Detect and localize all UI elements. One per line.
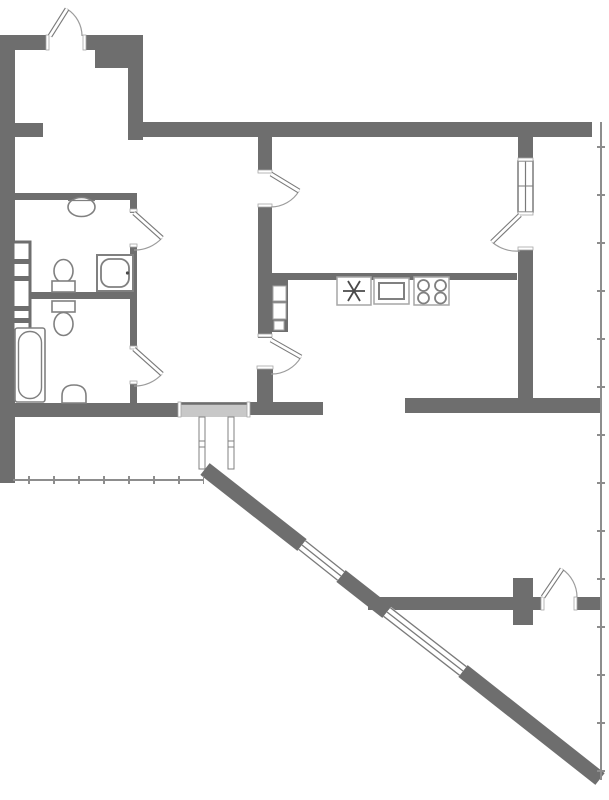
jamb-cap — [541, 597, 544, 610]
toilet-bathroom-bowl — [54, 313, 73, 336]
bath-shaft-rung — [13, 306, 30, 311]
wall-notch-top — [95, 50, 130, 68]
door-leaf-core — [492, 215, 520, 242]
diagonal-wall-seg1 — [205, 469, 302, 545]
top-left-entrance-door-arc — [67, 9, 82, 36]
wall-loggia-b — [577, 597, 601, 610]
vestibule-line-left — [199, 417, 205, 469]
door-leaf-core — [134, 349, 162, 374]
kitchen-door-arc — [271, 357, 301, 374]
kitchen-shaft-box — [274, 321, 284, 330]
jamb-cap — [574, 597, 577, 610]
door-leaf-core — [50, 9, 67, 36]
kitchen-shaft-box — [273, 286, 286, 301]
wall-center-top — [258, 137, 272, 173]
wc-door-arc — [134, 238, 162, 250]
diagonal-window-2-edge — [384, 616, 460, 675]
shower-cabin-handle — [126, 271, 129, 274]
wall-bath-right-seg3 — [130, 384, 137, 404]
wall-right-top — [518, 137, 533, 161]
bath-shaft-rung — [13, 318, 30, 323]
entry-vestibule-lines — [199, 417, 234, 469]
pedestal-sink-bathroom — [62, 385, 86, 403]
bathroom-door-arc — [134, 374, 162, 386]
diagonal-window-2-edge — [390, 608, 466, 667]
vent-shaft-kitchen — [273, 286, 286, 330]
bath-shaft-rung — [13, 276, 30, 281]
jamb-caps-group — [46, 35, 577, 610]
wall-top-left-b — [85, 35, 143, 50]
right-glazed-partition — [518, 161, 533, 212]
diagonal-window-2-mid — [387, 612, 463, 671]
jamb-cap — [178, 402, 181, 417]
diagonal-wall-seg3 — [463, 671, 600, 779]
balcony-door-right-arc — [492, 242, 520, 251]
jamb-cap — [130, 244, 137, 247]
jamb-cap — [518, 247, 533, 250]
jamb-cap — [258, 170, 272, 173]
wall-bath-bottom — [10, 403, 181, 417]
door-leaf-core — [543, 569, 562, 597]
door-arcs-group — [67, 9, 577, 597]
wall-bottom-left-of-gap — [250, 402, 323, 415]
toilet-wc-tank — [52, 281, 75, 292]
door-leaves-core — [50, 9, 562, 597]
jamb-cap — [518, 212, 533, 215]
bathroom-fixtures-group — [15, 198, 133, 404]
jamb-cap — [247, 402, 250, 417]
living-room-door-arc — [271, 191, 299, 207]
diagonal-wall-seg2 — [341, 576, 387, 612]
jamb-cap — [258, 334, 272, 337]
jamb-cap — [130, 381, 137, 384]
wall-center-mid — [258, 207, 272, 338]
bath-shaft-rung — [13, 259, 30, 264]
door-leaf-core — [134, 213, 162, 238]
main-entry-opening — [178, 402, 250, 417]
bathtub-inner — [19, 332, 42, 399]
shower-cabin-tray — [101, 259, 129, 287]
floor-plan-drawing — [0, 0, 609, 800]
loggia-door-bottom-arc — [562, 569, 577, 597]
jamb-cap — [257, 366, 273, 369]
wall-main-horizontal — [128, 122, 592, 137]
door-leaves-outline — [50, 9, 562, 597]
jamb-cap — [83, 35, 86, 50]
door-leaf-core — [271, 174, 299, 191]
door-leaf-core — [271, 340, 301, 357]
jamb-cap — [258, 204, 272, 207]
floor-plan-page — [0, 0, 609, 800]
vestibule-line-right — [228, 417, 234, 469]
toilet-bathroom-tank — [52, 301, 75, 312]
diagonal-window-1-mid — [302, 545, 341, 576]
vent-shaft-bathroom — [13, 242, 30, 333]
wall-loggia-pier — [513, 578, 533, 625]
toilet-wc-bowl — [54, 260, 73, 283]
kitchen-shaft-box — [273, 303, 286, 319]
wall-right-lower — [518, 250, 533, 398]
wall-left-pier — [15, 123, 43, 137]
jamb-cap — [46, 35, 49, 50]
wall-bottom-right — [405, 398, 601, 413]
jamb-cap — [518, 158, 533, 161]
partition-wc-bath-divider — [13, 292, 137, 299]
